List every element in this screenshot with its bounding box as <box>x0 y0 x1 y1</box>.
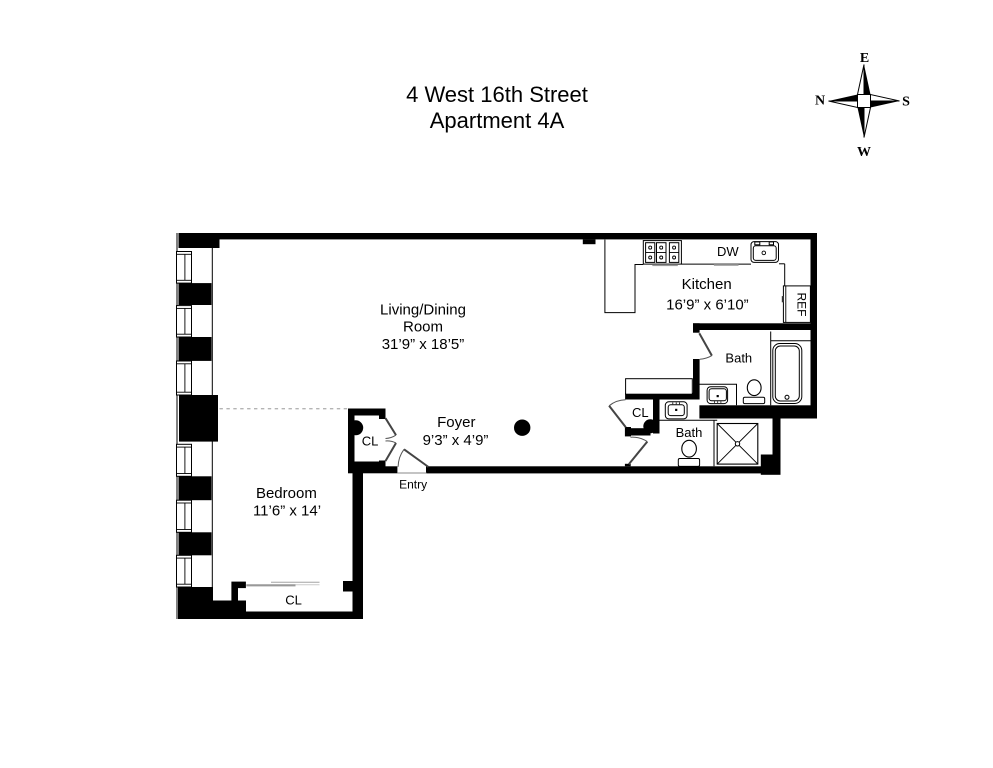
svg-text:Bath: Bath <box>725 351 752 366</box>
svg-text:W: W <box>857 145 871 160</box>
svg-text:4 West 16th Street: 4 West 16th Street <box>406 82 588 107</box>
svg-text:E: E <box>860 51 869 66</box>
svg-text:S: S <box>902 95 910 110</box>
svg-text:31’9” x 18’5”: 31’9” x 18’5” <box>382 336 465 353</box>
svg-text:11’6” x 14’: 11’6” x 14’ <box>253 502 321 519</box>
svg-text:Room: Room <box>403 319 443 336</box>
svg-text:Apartment 4A: Apartment 4A <box>430 108 565 133</box>
svg-text:DW: DW <box>717 244 739 259</box>
svg-text:CL: CL <box>285 593 302 608</box>
svg-text:CL: CL <box>632 405 649 420</box>
svg-text:16’9” x 6’10”: 16’9” x 6’10” <box>666 296 749 313</box>
svg-text:N: N <box>815 94 825 109</box>
svg-text:9’3” x 4’9”: 9’3” x 4’9” <box>423 432 489 449</box>
svg-text:Bath: Bath <box>676 425 703 440</box>
svg-text:Living/Dining: Living/Dining <box>380 302 466 319</box>
svg-text:Entry: Entry <box>399 478 427 492</box>
svg-text:CL: CL <box>362 433 379 448</box>
svg-text:Kitchen: Kitchen <box>682 276 732 293</box>
svg-text:Foyer: Foyer <box>437 414 475 431</box>
svg-text:Bedroom: Bedroom <box>256 485 317 502</box>
svg-text:REF: REF <box>795 293 809 317</box>
